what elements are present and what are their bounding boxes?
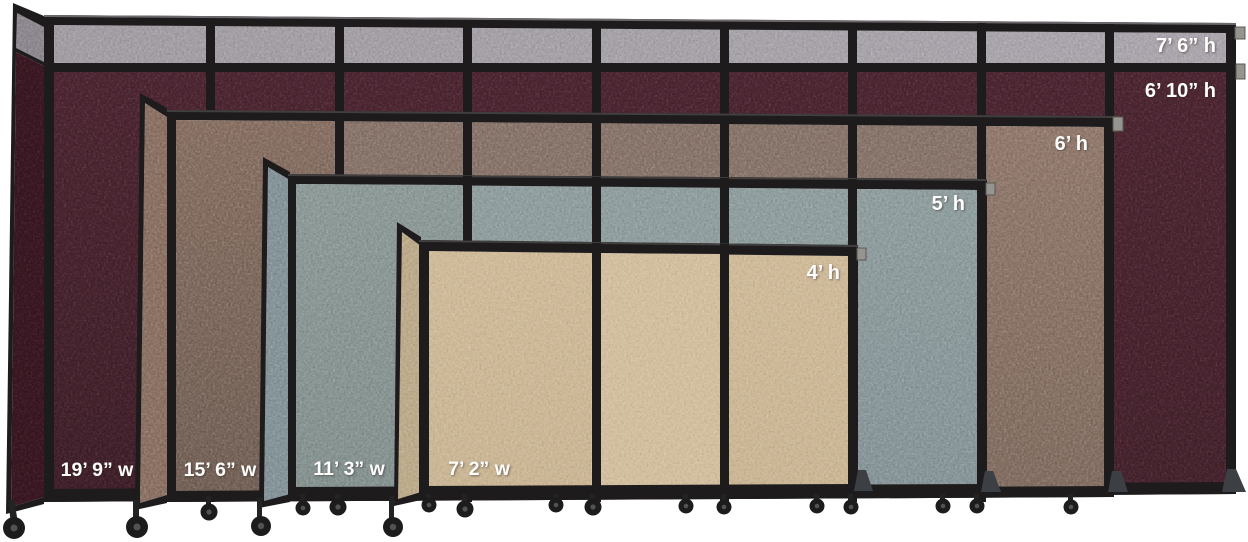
svg-text:6’ 10” h: 6’ 10” h [1145,80,1216,102]
svg-text:7’ 6” h: 7’ 6” h [1156,35,1216,57]
svg-text:19’ 9” w: 19’ 9” w [61,459,134,481]
svg-text:11’ 3” w: 11’ 3” w [313,458,385,480]
svg-text:7’ 2” w: 7’ 2” w [448,458,511,480]
svg-text:6’ h: 6’ h [1055,133,1088,155]
svg-text:5’ h: 5’ h [932,193,965,215]
svg-text:4’ h: 4’ h [807,262,840,284]
svg-text:15’ 6” w: 15’ 6” w [184,459,257,481]
